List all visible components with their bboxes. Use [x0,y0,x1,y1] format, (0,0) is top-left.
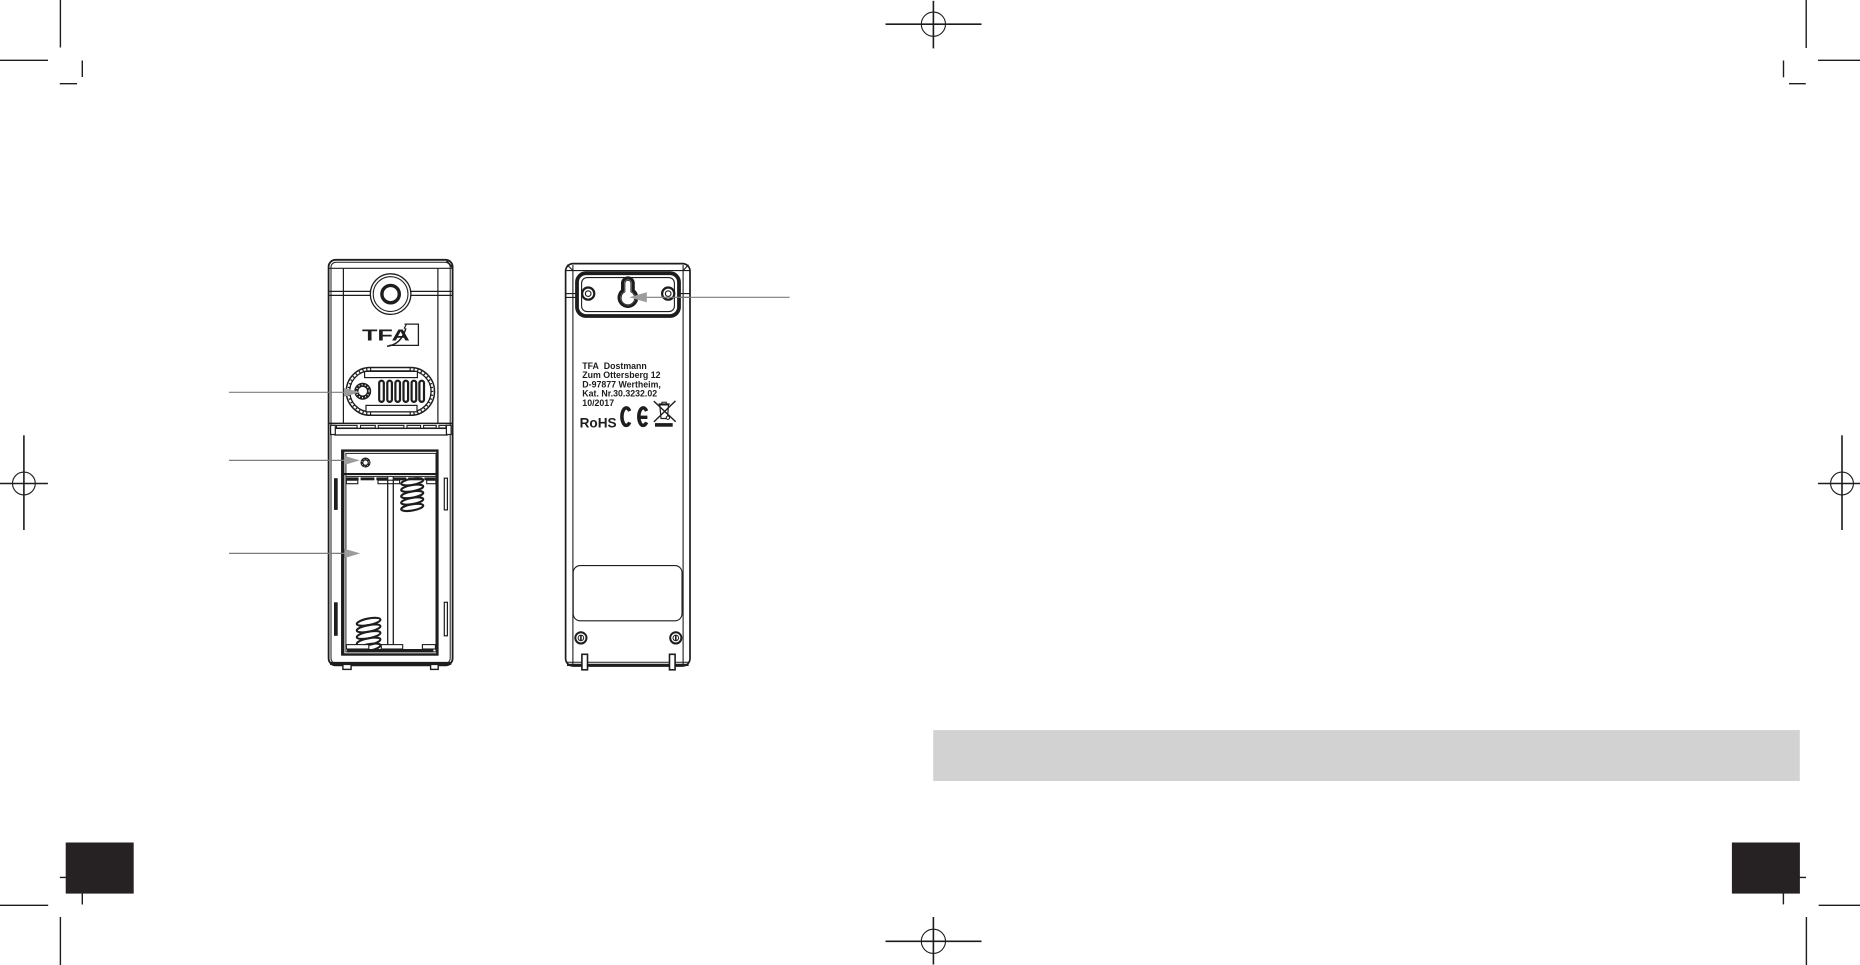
svg-text:RoHS: RoHS [580,415,617,430]
svg-text:10/2017: 10/2017 [582,398,614,408]
